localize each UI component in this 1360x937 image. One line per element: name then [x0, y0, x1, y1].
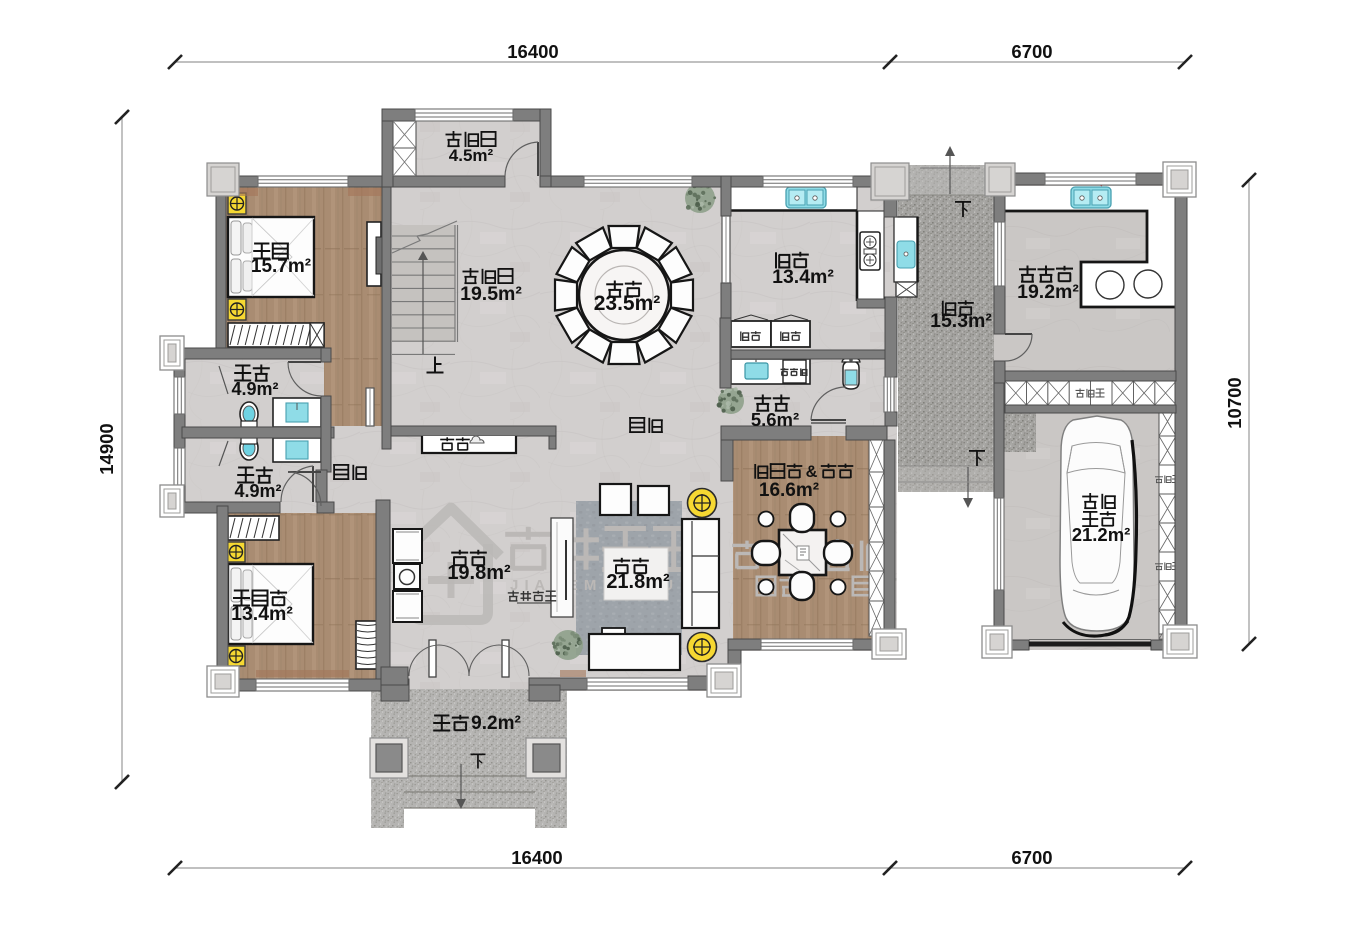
svg-text:4.9m²: 4.9m²: [231, 379, 278, 399]
svg-text:15.3m²: 15.3m²: [930, 310, 992, 332]
svg-text:23.5m²: 23.5m²: [594, 292, 661, 315]
svg-text:16.6m²: 16.6m²: [759, 480, 819, 501]
svg-text:6700: 6700: [1011, 847, 1052, 868]
svg-text:16400: 16400: [507, 41, 558, 62]
svg-text:19.5m²: 19.5m²: [460, 283, 522, 305]
svg-text:19.2m²: 19.2m²: [1017, 281, 1079, 303]
svg-text:4.5m²: 4.5m²: [449, 146, 494, 165]
svg-text:13.4m²: 13.4m²: [231, 603, 293, 625]
svg-text:16400: 16400: [511, 847, 562, 868]
svg-text:9.2m²: 9.2m²: [471, 713, 521, 734]
svg-text:19.8m²: 19.8m²: [447, 562, 511, 584]
svg-text:21.2m²: 21.2m²: [1072, 524, 1131, 545]
svg-text:13.4m²: 13.4m²: [772, 266, 834, 288]
svg-text:4.9m²: 4.9m²: [234, 481, 281, 501]
svg-text:15.7m²: 15.7m²: [251, 256, 311, 277]
svg-text:6700: 6700: [1011, 41, 1052, 62]
svg-text:&: &: [806, 463, 818, 481]
svg-text:5.6m²: 5.6m²: [751, 409, 799, 430]
svg-text:14900: 14900: [96, 423, 117, 474]
svg-text:10700: 10700: [1224, 377, 1245, 428]
svg-text:21.8m²: 21.8m²: [606, 571, 670, 593]
